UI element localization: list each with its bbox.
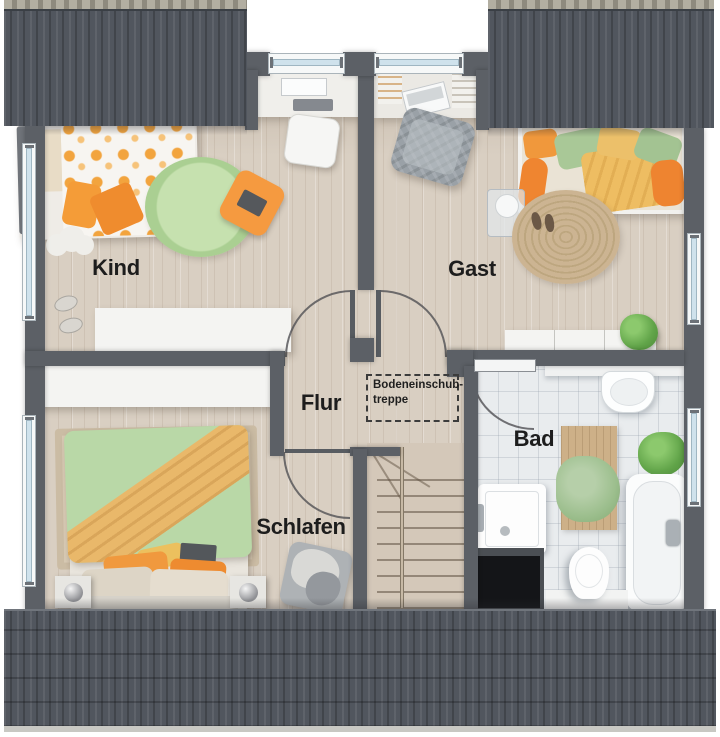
toilet — [569, 547, 609, 599]
stair-railing — [400, 447, 404, 608]
gast-desk-books — [452, 72, 478, 108]
window-tick — [690, 502, 699, 505]
bathtub — [626, 474, 688, 612]
room-label-kind: Kind — [92, 255, 140, 281]
gast-desk-books — [378, 74, 402, 104]
shower-inner — [485, 491, 539, 547]
kind-desk-chair — [283, 113, 341, 170]
schlafen-bed — [66, 428, 252, 612]
wall-kind-gast-divider — [358, 74, 374, 290]
duct-shaft — [478, 556, 540, 608]
window-tick — [459, 57, 462, 68]
wall-exterior-right — [684, 128, 704, 612]
roof-ridge-cap — [4, 0, 247, 11]
attic-hatch-note: Bodeneinschub- treppe — [366, 374, 459, 422]
schlafen-duvet-green — [64, 425, 252, 563]
wall-kind-schlafen — [25, 351, 285, 366]
kind-rug-pillow-tray — [236, 189, 267, 217]
gast-jute-rug — [512, 190, 620, 284]
slipper — [52, 293, 79, 315]
room-label-schlafen: Schlafen — [256, 514, 345, 540]
window-glass — [26, 420, 32, 582]
gast-table-lamp — [495, 194, 519, 218]
floor-plan: Kind Gast Flur Schlafen Bad Bodeneinschu… — [0, 0, 720, 737]
nightstand-lamp — [64, 583, 83, 602]
window-glass — [691, 238, 697, 320]
wall-flur-west — [270, 351, 284, 456]
sandal — [544, 213, 555, 232]
bad-door-leaf — [474, 359, 536, 372]
bad-green-towel — [556, 456, 620, 522]
wall-stub-doors — [350, 338, 374, 362]
room-label-gast: Gast — [448, 256, 496, 282]
bathtub-faucet — [666, 520, 680, 546]
gast-plant — [620, 314, 658, 350]
window-tick — [340, 57, 343, 68]
toilet-seat — [575, 554, 603, 588]
gast-sandals — [532, 212, 562, 236]
staircase — [367, 443, 464, 612]
gast-armchair-cushion — [401, 117, 466, 176]
slipper — [58, 315, 85, 335]
window-bad — [687, 408, 701, 507]
schlafen-chair-clothes — [278, 540, 354, 616]
window-tick — [690, 410, 699, 413]
room-label-flur: Flur — [301, 390, 341, 416]
window-glass — [26, 148, 32, 316]
window-tick — [25, 417, 34, 420]
nightstand-right — [230, 576, 266, 608]
schlafen-door-leaf — [285, 449, 350, 453]
attic-hatch-note-line2: treppe — [373, 393, 455, 408]
schlafen-wardrobe — [35, 360, 270, 407]
kind-desk-monitor — [281, 78, 327, 96]
roof-bottom — [4, 609, 716, 727]
wall-bad-west — [464, 366, 478, 612]
shower-tray — [478, 484, 546, 554]
window-dormer-right — [374, 53, 464, 74]
attic-hatch-note-line1: Bodeneinschub- — [373, 378, 455, 393]
window-glass — [273, 59, 340, 66]
kind-cloud-rug — [46, 226, 94, 256]
nightstand-left — [55, 576, 91, 608]
shower-drain — [500, 526, 510, 536]
roof-top-left — [4, 0, 247, 126]
window-tick — [25, 145, 34, 148]
window-tick — [690, 235, 699, 238]
gast-bolster-orange2 — [650, 158, 687, 207]
laptop-screen — [406, 86, 444, 106]
window-gast — [687, 233, 701, 325]
window-dormer-left — [268, 53, 345, 74]
window-tick — [270, 57, 273, 68]
sandal — [530, 211, 543, 231]
kind-sideboard — [95, 308, 291, 352]
window-schlafen — [22, 415, 36, 587]
kind-slippers — [54, 296, 84, 338]
kind-desk — [245, 72, 358, 117]
wall-stair-west — [353, 449, 367, 612]
cloud-part — [74, 235, 94, 255]
dormer-stub-center — [343, 52, 376, 76]
window-tick — [690, 320, 699, 323]
roof-top-right — [488, 0, 714, 128]
nightstand-lamp — [239, 583, 258, 602]
stair-treads — [377, 465, 464, 612]
window-glass — [691, 413, 697, 502]
window-tick — [25, 582, 34, 585]
sink-bowl — [610, 378, 648, 406]
window-tick — [25, 316, 34, 319]
window-glass — [379, 59, 459, 66]
bad-sink — [601, 371, 655, 413]
kind-desk-keyboard — [293, 99, 333, 111]
roof-ridge-cap — [488, 0, 714, 11]
window-kind — [22, 143, 36, 321]
gast-door-leaf — [376, 290, 381, 357]
window-tick — [376, 57, 379, 68]
schlafen-blanket-orange — [64, 425, 252, 563]
room-label-bad: Bad — [514, 426, 555, 452]
roof-gutter — [4, 726, 716, 732]
